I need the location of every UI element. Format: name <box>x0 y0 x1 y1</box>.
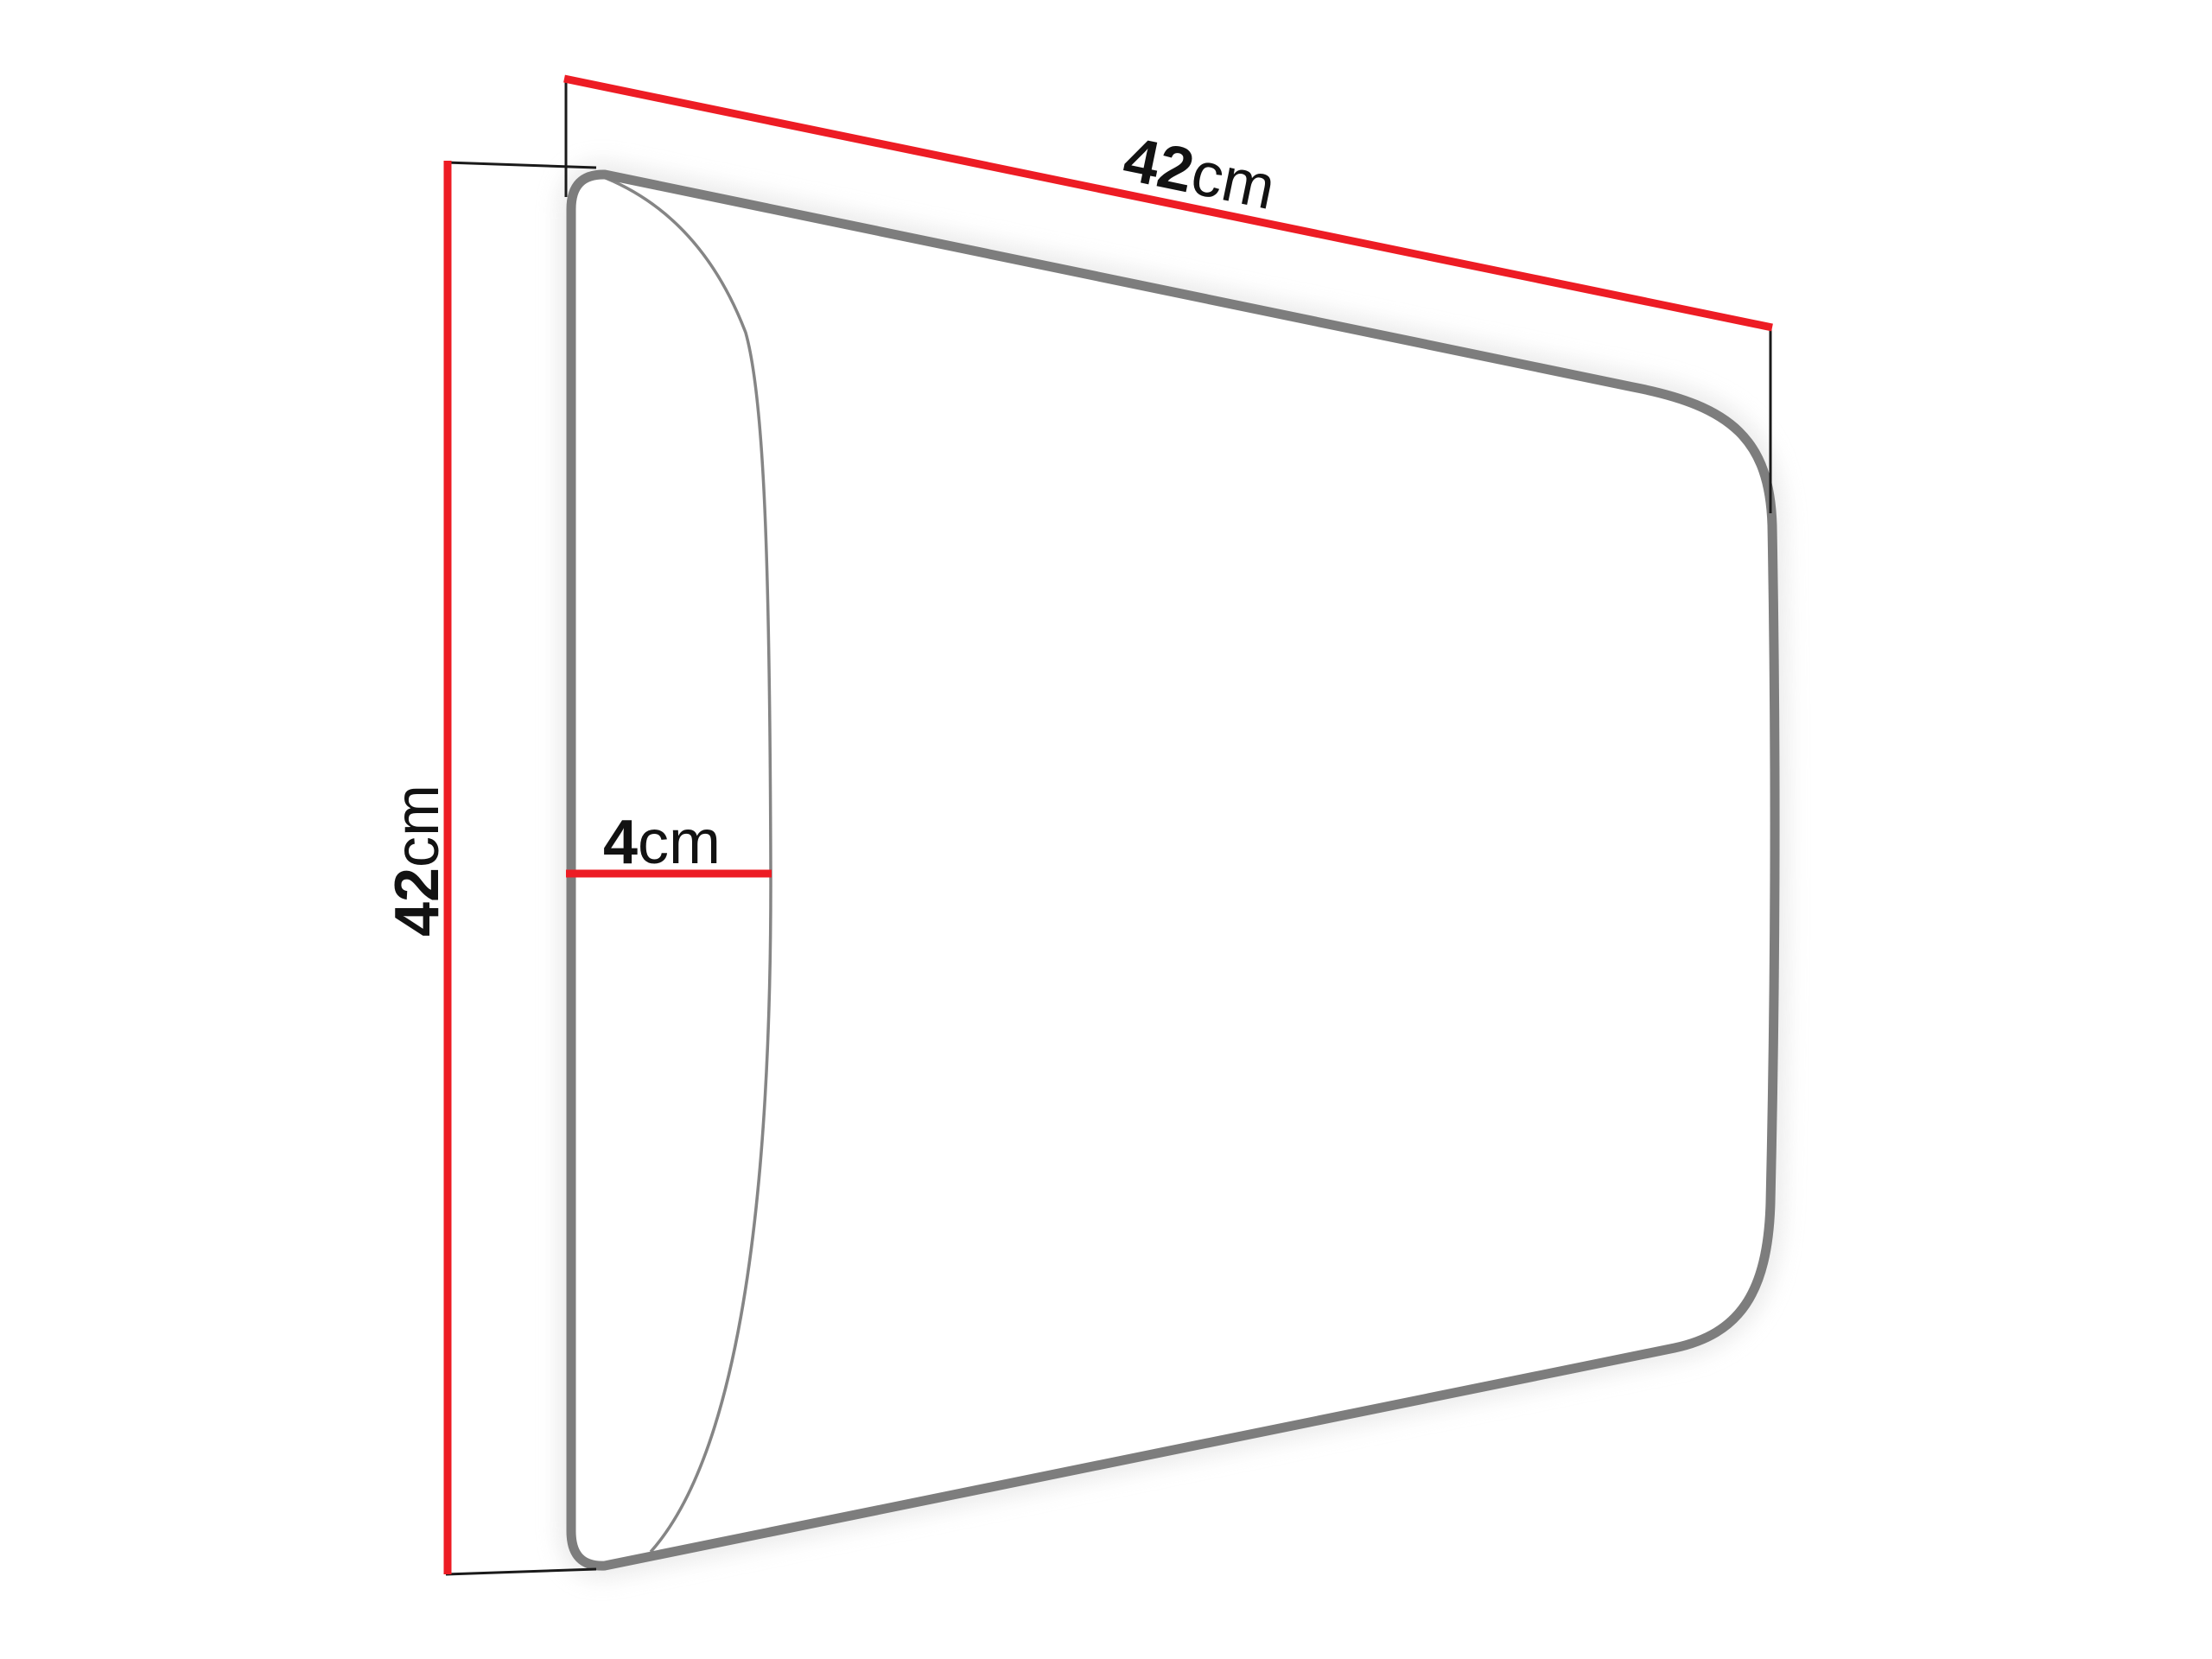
panel-dimension-diagram: 42cm 42cm 4cm <box>0 0 2212 1659</box>
height-value: 42 <box>383 868 452 937</box>
height-dimension-label: 42cm <box>386 785 448 937</box>
depth-dimension-label: 4cm <box>603 811 721 874</box>
height-unit: cm <box>383 785 452 868</box>
depth-unit: cm <box>638 808 721 877</box>
panel-drawing <box>0 0 2212 1659</box>
extension-line-bottom-left-horizontal <box>446 1569 596 1574</box>
extension-line-top-left-horizontal <box>446 162 596 168</box>
depth-value: 4 <box>603 808 638 877</box>
